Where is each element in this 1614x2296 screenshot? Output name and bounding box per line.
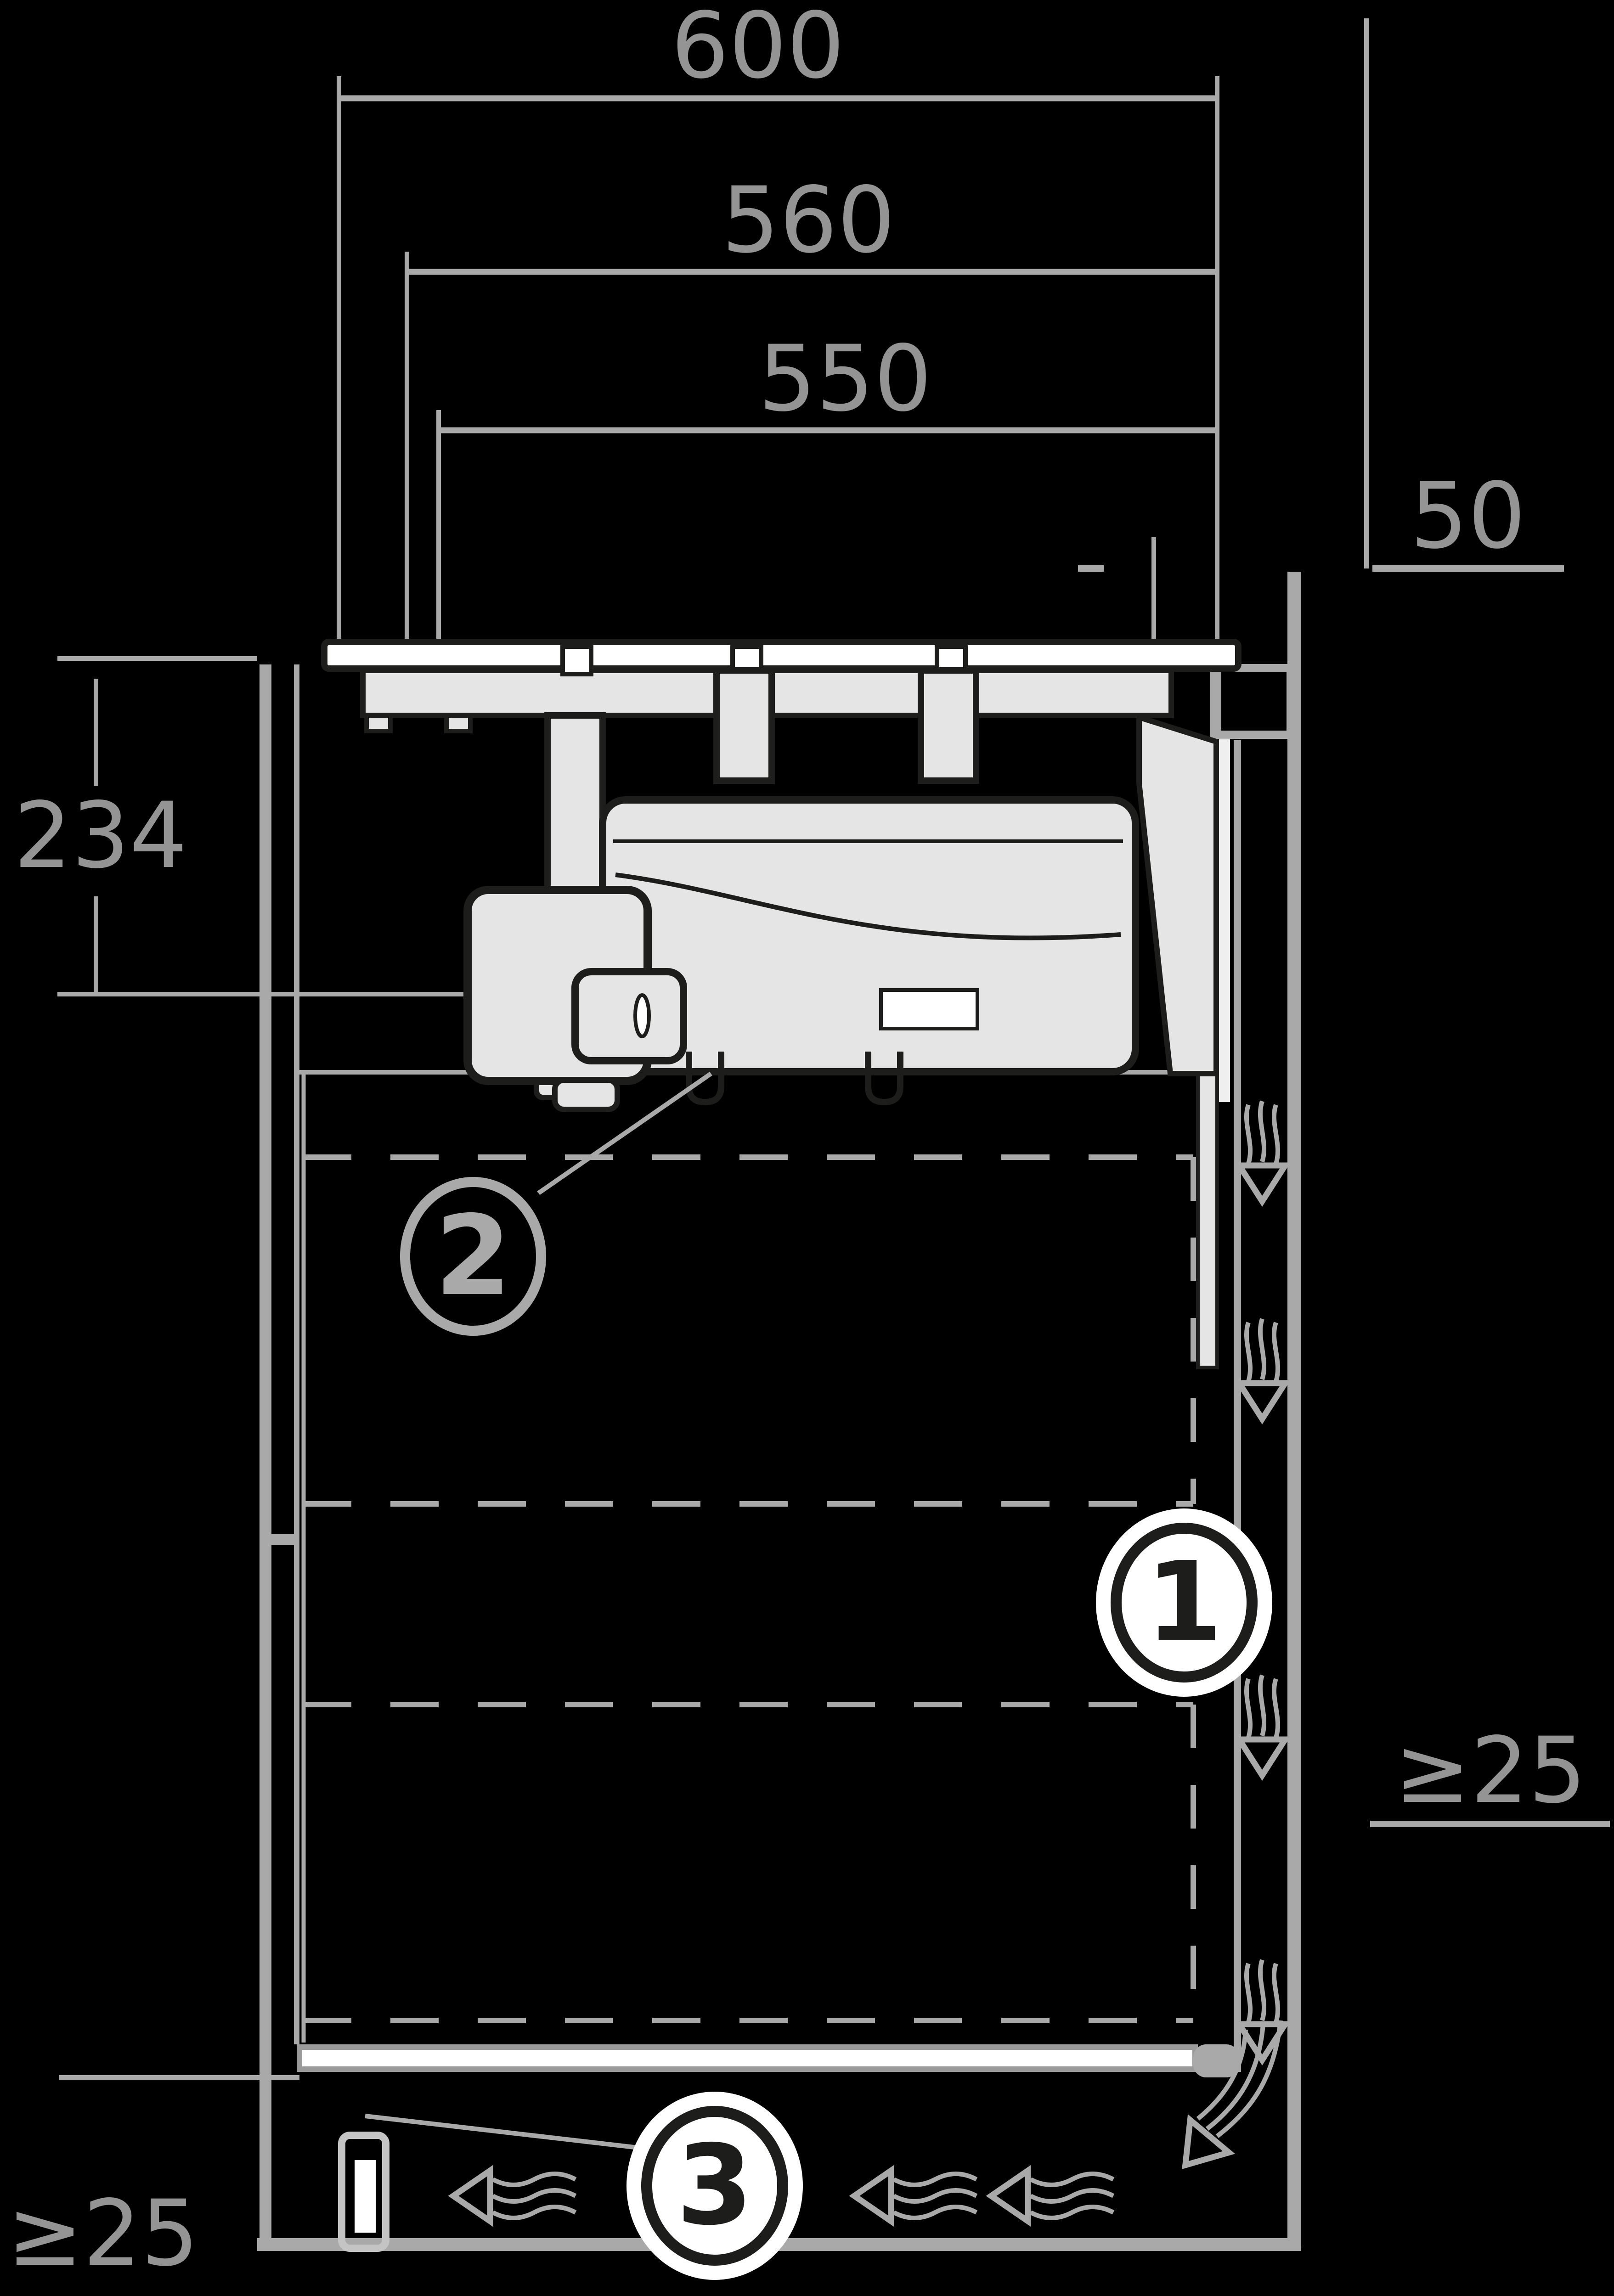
extractor-label-plate [881,990,977,1029]
mounting-bracket-3 [921,670,976,781]
dim-600-label: 600 [671,0,845,99]
plinth-panel-core [355,2160,376,2233]
worktop [324,642,1238,669]
dimension-ge25-right: ≥25 [1370,1717,1610,1824]
dim-50-label: 50 [1410,463,1526,569]
filter-door-front-box [575,972,683,1061]
filter-door-foot [555,1080,617,1109]
cooktop-foot-2 [446,715,470,731]
callout-2-number: 2 [435,1192,512,1320]
back-panel-white-strip [1219,739,1230,1102]
bracket-tab-1 [563,647,591,674]
dim-ge25-right-label: ≥25 [1394,1717,1586,1823]
callout-1: 1 [1096,1508,1272,1697]
cabinet-bottom-board-endcap [1193,2044,1239,2077]
dim-ge25-bottom-label: ≥25 [7,2180,199,2286]
dim-560-label: 560 [722,167,895,273]
cabinet-bottom-board [299,2047,1195,2069]
callout-1-number: 1 [1146,1538,1223,1666]
dim-234-label: 234 [14,782,187,889]
callout-2: 2 [385,1162,561,1351]
installation-diagram: 600 560 550 50 234 ≥25 ≥25 [0,0,1614,2296]
mounting-bracket-2 [717,670,772,781]
callout-3: 3 [626,2092,803,2280]
callout-3-number: 3 [677,2121,753,2250]
dimension-ge25-bottom: ≥25 [0,2180,199,2296]
door-handle-slot [635,995,649,1036]
dim-550-label: 550 [758,326,932,432]
cooktop-foot-1 [367,715,390,731]
